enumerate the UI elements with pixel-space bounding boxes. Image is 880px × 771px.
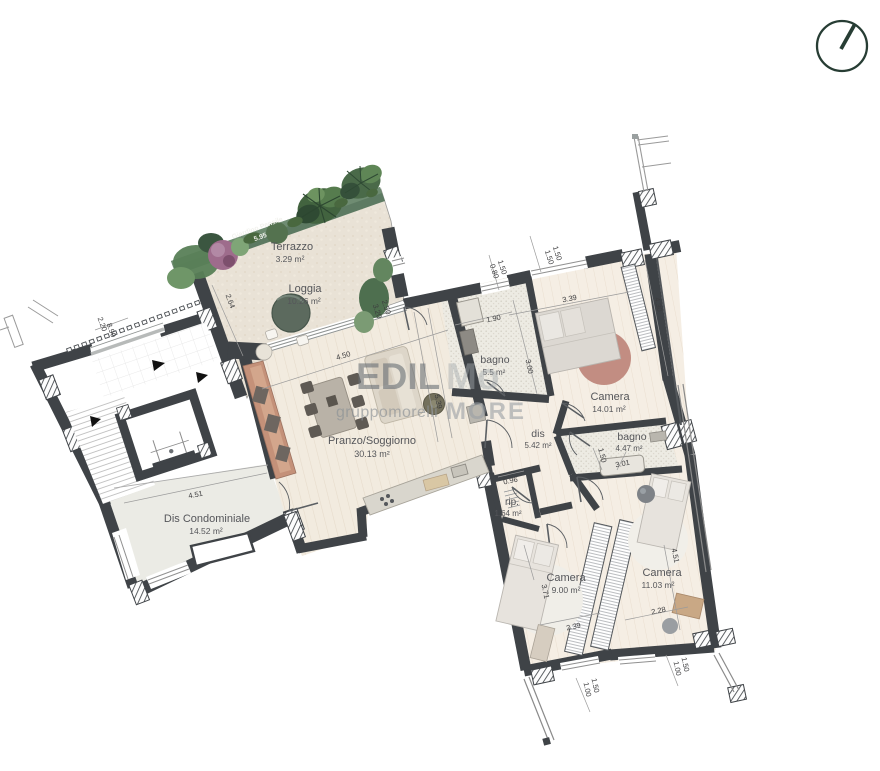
svg-text:gruppomorelli: gruppomorelli xyxy=(336,404,438,421)
svg-text:9.00 m²: 9.00 m² xyxy=(552,585,581,595)
svg-text:Mo: Mo xyxy=(446,356,499,397)
svg-text:dis: dis xyxy=(531,428,544,440)
svg-text:14.52 m²: 14.52 m² xyxy=(189,526,223,536)
svg-text:5.42 m²: 5.42 m² xyxy=(524,441,551,450)
svg-text:MORE: MORE xyxy=(446,398,526,425)
svg-text:1.64 m²: 1.64 m² xyxy=(494,509,521,518)
svg-text:14.01 m²: 14.01 m² xyxy=(592,404,626,414)
svg-text:EDIL: EDIL xyxy=(356,356,440,397)
svg-text:10.26 m²: 10.26 m² xyxy=(287,296,321,306)
svg-text:bagno: bagno xyxy=(617,431,646,443)
svg-text:Terrazzo: Terrazzo xyxy=(271,241,313,253)
svg-text:Camera: Camera xyxy=(590,391,630,403)
svg-text:4.47 m²: 4.47 m² xyxy=(615,444,642,453)
svg-text:11.03 m²: 11.03 m² xyxy=(642,580,675,590)
svg-text:Dis Condominiale: Dis Condominiale xyxy=(164,513,250,525)
svg-text:Pranzo/Soggiorno: Pranzo/Soggiorno xyxy=(328,435,416,447)
svg-text:rip.: rip. xyxy=(505,497,519,508)
svg-text:30.13 m²: 30.13 m² xyxy=(354,449,390,459)
svg-text:3.29 m²: 3.29 m² xyxy=(276,254,305,264)
svg-text:Camera: Camera xyxy=(642,567,682,579)
svg-text:Camera: Camera xyxy=(546,572,586,584)
svg-text:Loggia: Loggia xyxy=(288,283,322,295)
